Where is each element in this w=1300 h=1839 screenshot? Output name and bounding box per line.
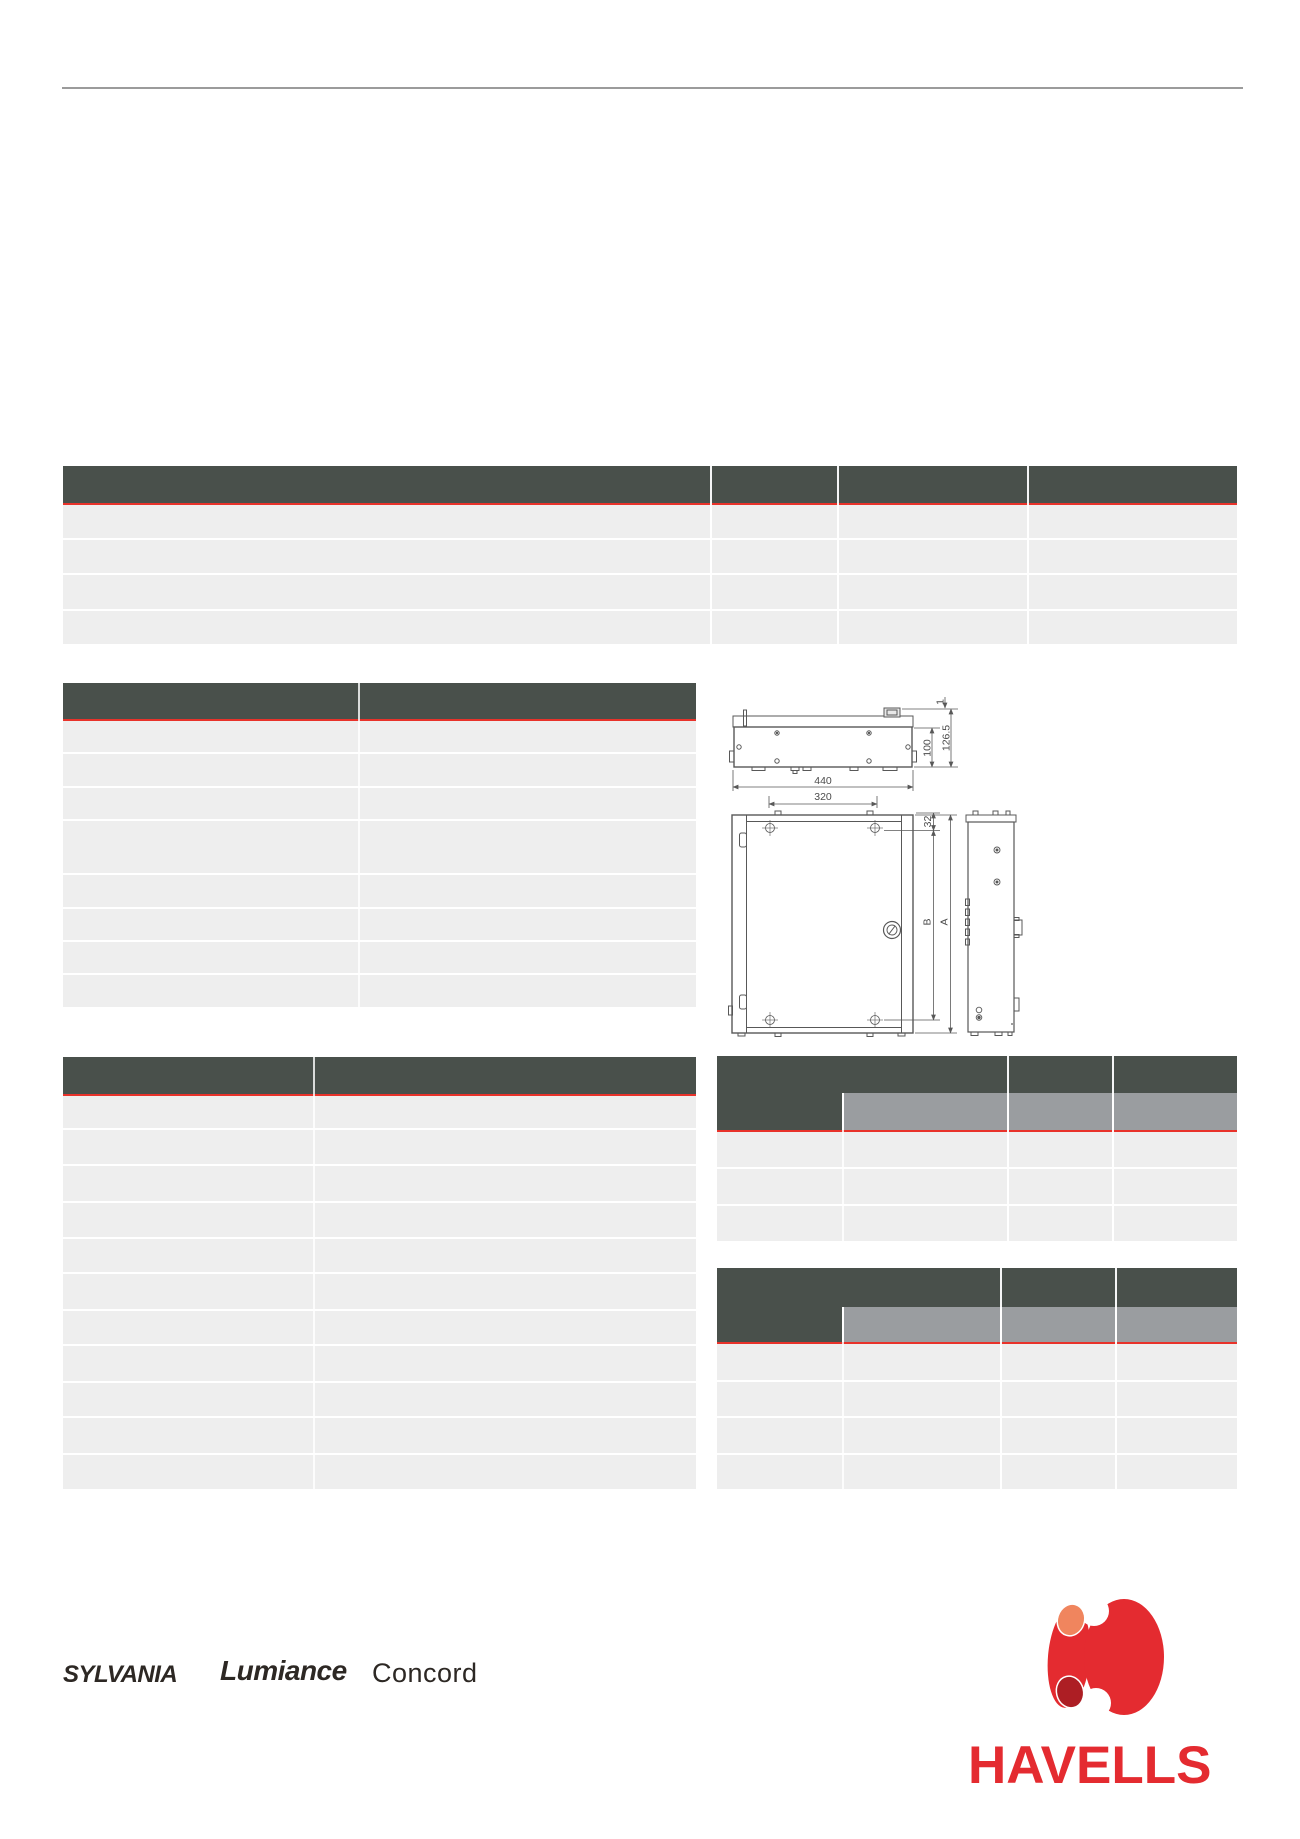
table-row bbox=[63, 505, 1237, 538]
table-row bbox=[63, 788, 696, 819]
front-view bbox=[729, 811, 914, 1037]
dim-label-b: B bbox=[922, 918, 934, 925]
column-divider bbox=[1007, 1056, 1009, 1241]
table-row bbox=[63, 721, 696, 752]
table-subheader bbox=[717, 1093, 1237, 1132]
havells-wordmark: HAVELLS bbox=[968, 1735, 1248, 1796]
havells-icon bbox=[1040, 1592, 1170, 1722]
subheader-cell bbox=[844, 1307, 1000, 1342]
table-row bbox=[63, 540, 1237, 573]
spec-table-left bbox=[63, 683, 696, 1009]
sylvania-logo: SYLVANIA bbox=[63, 1661, 177, 1689]
table-row bbox=[63, 1418, 696, 1453]
dim-label-a: A bbox=[939, 918, 951, 925]
table-header bbox=[63, 466, 1237, 505]
table-row bbox=[63, 1130, 696, 1164]
column-divider bbox=[842, 1307, 844, 1489]
table-row bbox=[63, 1383, 696, 1416]
table-header bbox=[63, 683, 696, 721]
spec-table-bottom bbox=[63, 1057, 696, 1491]
table-title-bar bbox=[717, 1268, 1237, 1307]
table-row bbox=[63, 942, 696, 973]
subheader-cell bbox=[1002, 1307, 1115, 1342]
spec-table-top bbox=[63, 466, 1237, 646]
dim-label-32: 32 bbox=[922, 816, 934, 828]
table-row bbox=[717, 1169, 1237, 1204]
table-row bbox=[63, 1311, 696, 1344]
table-row bbox=[717, 1382, 1237, 1416]
table-header bbox=[63, 1057, 696, 1096]
table-row bbox=[63, 611, 1237, 644]
table-body bbox=[63, 721, 696, 1007]
dim-label-126-5: 126.5 bbox=[941, 725, 953, 751]
table-body bbox=[717, 1344, 1237, 1489]
table-row bbox=[63, 575, 1237, 609]
dim-label-100: 100 bbox=[922, 739, 934, 757]
subheader-cell-dark bbox=[717, 1093, 842, 1130]
table-row bbox=[717, 1455, 1237, 1489]
table-row bbox=[717, 1132, 1237, 1167]
side-view bbox=[966, 811, 1023, 1036]
top-view bbox=[730, 708, 917, 774]
datasheet-page: 440 320 100 126.5 1 bbox=[0, 0, 1300, 1839]
dim-label-440: 440 bbox=[814, 775, 832, 787]
table-row bbox=[63, 1274, 696, 1309]
subheader-cell bbox=[1114, 1093, 1237, 1130]
column-divider bbox=[358, 683, 360, 1007]
dim-label-320: 320 bbox=[814, 791, 832, 803]
order-table-b bbox=[717, 1268, 1237, 1491]
table-row bbox=[63, 1346, 696, 1381]
column-divider bbox=[1115, 1268, 1117, 1489]
subheader-cell bbox=[1117, 1307, 1237, 1342]
table-row bbox=[63, 975, 696, 1007]
table-row bbox=[63, 754, 696, 786]
table-body bbox=[63, 1096, 696, 1489]
dim-label-1: 1 bbox=[935, 699, 947, 705]
column-divider bbox=[710, 466, 712, 644]
table-subheader bbox=[717, 1307, 1237, 1344]
table-row bbox=[717, 1344, 1237, 1380]
table-row bbox=[63, 875, 696, 907]
table-row bbox=[63, 1096, 696, 1128]
column-divider bbox=[842, 1093, 844, 1241]
table-title-bar bbox=[717, 1056, 1237, 1093]
column-divider bbox=[1112, 1056, 1114, 1241]
table-row bbox=[63, 1455, 696, 1489]
column-divider bbox=[837, 466, 839, 644]
table-row bbox=[63, 821, 696, 873]
subheader-cell-dark bbox=[717, 1307, 842, 1342]
column-divider bbox=[1027, 466, 1029, 644]
column-divider bbox=[313, 1057, 315, 1489]
concord-logo: Concord bbox=[372, 1658, 478, 1689]
table-row bbox=[63, 1166, 696, 1201]
column-divider bbox=[1000, 1268, 1002, 1489]
table-row bbox=[717, 1418, 1237, 1453]
subheader-cell bbox=[844, 1093, 1007, 1130]
table-body bbox=[63, 505, 1237, 644]
lumiance-logo: Lumiance bbox=[220, 1655, 347, 1687]
table-body bbox=[717, 1132, 1237, 1241]
header-rule bbox=[62, 87, 1243, 89]
order-table-a bbox=[717, 1056, 1237, 1243]
subheader-cell bbox=[1009, 1093, 1112, 1130]
table-row bbox=[717, 1206, 1237, 1241]
technical-drawing: 440 320 100 126.5 1 bbox=[700, 692, 1070, 1044]
table-row bbox=[63, 1203, 696, 1237]
table-row bbox=[63, 909, 696, 940]
table-row bbox=[63, 1239, 696, 1272]
